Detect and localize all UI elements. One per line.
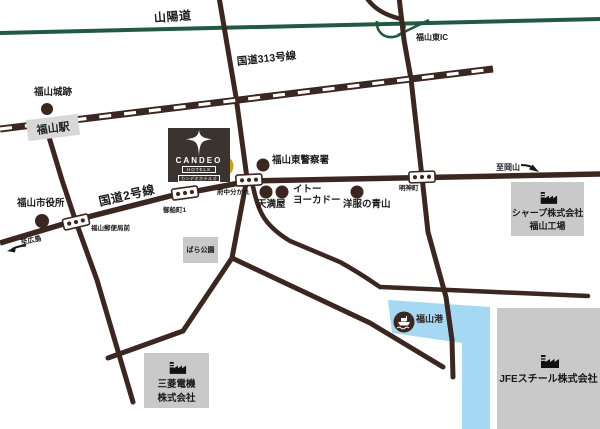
factory-icon — [538, 353, 560, 368]
aoyama-dot — [351, 186, 364, 199]
mitsubishi-label-line2: 株式会社 — [157, 390, 195, 404]
sanyo-expressway-label: 山陽道 — [154, 9, 192, 24]
signal-post-office — [62, 214, 90, 231]
candeo-hotels-label: HOTELS — [182, 166, 216, 173]
castle-label: 福山城跡 — [34, 88, 72, 98]
jfe-steel-box: JFEスチール株式会社 — [497, 308, 600, 429]
ito-yokado-label-line2: ヨーカドー — [293, 196, 341, 206]
port-label: 福山港 — [416, 315, 443, 324]
sharp-label-line1: シャープ株式会社 — [512, 206, 583, 219]
signal-fuchu-wakare — [236, 174, 263, 186]
tenmaya-dot — [260, 186, 273, 199]
factory-icon — [538, 190, 558, 204]
sharp-label-line2: 福山工場 — [529, 219, 565, 232]
castle-dot — [41, 103, 53, 115]
signal-myojincho-label: 明神町 — [399, 186, 419, 193]
to-okayama-arrow — [521, 165, 539, 173]
police-label: 福山東警察署 — [272, 156, 329, 166]
candeo-hotels-logo: CANDEO HOTELS カンデオホテルズ — [168, 128, 230, 182]
aoyama-label: 洋服の青山 — [343, 200, 391, 210]
sharp-factory-box: シャープ株式会社 福山工場 — [511, 182, 584, 236]
signal-mifunecho-label: 御船町1 — [163, 208, 186, 215]
fukuyama-station-label: 福山駅 — [36, 118, 71, 138]
signal-mifunecho — [171, 186, 198, 201]
city-hall-label: 福山市役所 — [17, 199, 65, 209]
station-south-road — [49, 137, 133, 402]
ito-yokado-dot — [276, 186, 289, 199]
rose-park-box: ばら公園 — [183, 237, 218, 263]
access-map: 山陽道 福山東IC 国道313号線 国道2号線 福山駅 CANDEO HOTEL… — [0, 0, 600, 429]
sanyo-expressway-road — [0, 19, 600, 33]
police-dot — [257, 159, 270, 172]
rose-park-label: ばら公園 — [187, 245, 215, 255]
ito-yokado-label-line1: イトー — [293, 185, 322, 195]
mitsubishi-label-line1: 三菱電機 — [157, 376, 195, 390]
candeo-brand-label: CANDEO — [176, 156, 223, 165]
fukuyama-higashi-ic-label: 福山東IC — [416, 34, 448, 42]
jfe-label: JFEスチール株式会社 — [499, 370, 597, 385]
signal-post-office-label: 福山郵便局前 — [91, 226, 130, 233]
mitsubishi-electric-box: 三菱電機 株式会社 — [144, 353, 209, 408]
port-ship-icon — [394, 312, 415, 333]
candeo-kana-label: カンデオホテルズ — [178, 175, 220, 182]
signal-fuchu-wakare-label: 府中分かれ — [217, 190, 250, 197]
signal-myojincho — [409, 171, 435, 183]
to-okayama-label: 至岡山 — [496, 164, 520, 172]
factory-icon — [167, 360, 187, 374]
myojincho-road-branch — [366, 0, 401, 19]
city-hall-dot — [35, 214, 49, 228]
tenmaya-label: 天満屋 — [257, 200, 286, 210]
southwest-branch-road — [108, 258, 232, 358]
